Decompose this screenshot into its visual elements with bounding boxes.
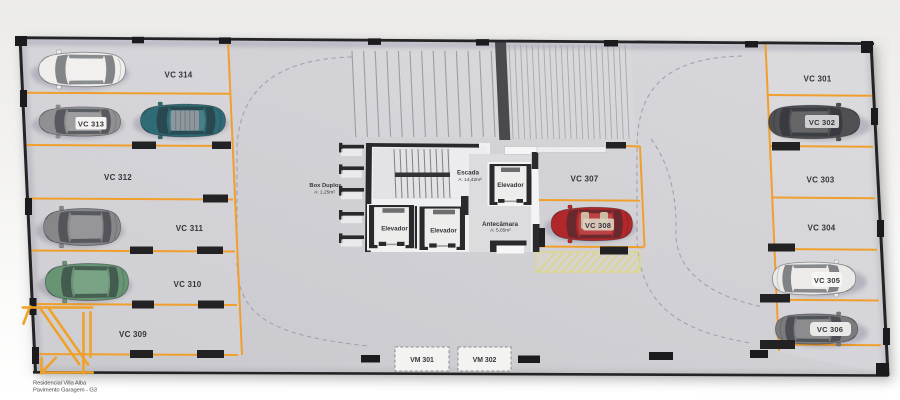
svg-text:VC 314: VC 314 [165, 71, 193, 80]
svg-text:VC 311: VC 311 [176, 224, 204, 233]
svg-text:A: 5,65m²: A: 5,65m² [490, 228, 511, 234]
svg-text:VC 308: VC 308 [585, 221, 611, 230]
svg-text:VC 313: VC 313 [78, 120, 104, 129]
svg-text:VC 307: VC 307 [571, 175, 599, 184]
svg-text:A: 1,25m²: A: 1,25m² [314, 189, 335, 195]
svg-text:VM 302: VM 302 [473, 357, 497, 364]
svg-text:VC 306: VC 306 [817, 325, 843, 334]
svg-text:VC 310: VC 310 [174, 280, 202, 289]
svg-text:A: 14,42m²: A: 14,42m² [458, 177, 482, 183]
svg-text:VC 312: VC 312 [104, 173, 132, 182]
svg-text:VC 303: VC 303 [807, 176, 835, 185]
svg-text:Box Duplos: Box Duplos [309, 183, 341, 189]
svg-text:VM 301: VM 301 [410, 357, 434, 364]
svg-text:VC 305: VC 305 [814, 276, 840, 285]
svg-text:Antecâmara: Antecâmara [482, 221, 519, 228]
svg-text:VC 309: VC 309 [119, 330, 147, 339]
svg-text:Elevador: Elevador [430, 228, 457, 235]
svg-text:Residencial Villa Alba: Residencial Villa Alba [33, 381, 87, 387]
svg-text:Elevador: Elevador [497, 182, 524, 189]
svg-text:VC 302: VC 302 [809, 118, 835, 127]
svg-text:Elevador: Elevador [381, 226, 408, 233]
svg-text:Escada: Escada [457, 170, 480, 177]
svg-text:VC 304: VC 304 [808, 224, 836, 233]
svg-text:Pavimento Garagem - G3: Pavimento Garagem - G3 [33, 387, 97, 393]
svg-text:VC 301: VC 301 [804, 75, 832, 84]
